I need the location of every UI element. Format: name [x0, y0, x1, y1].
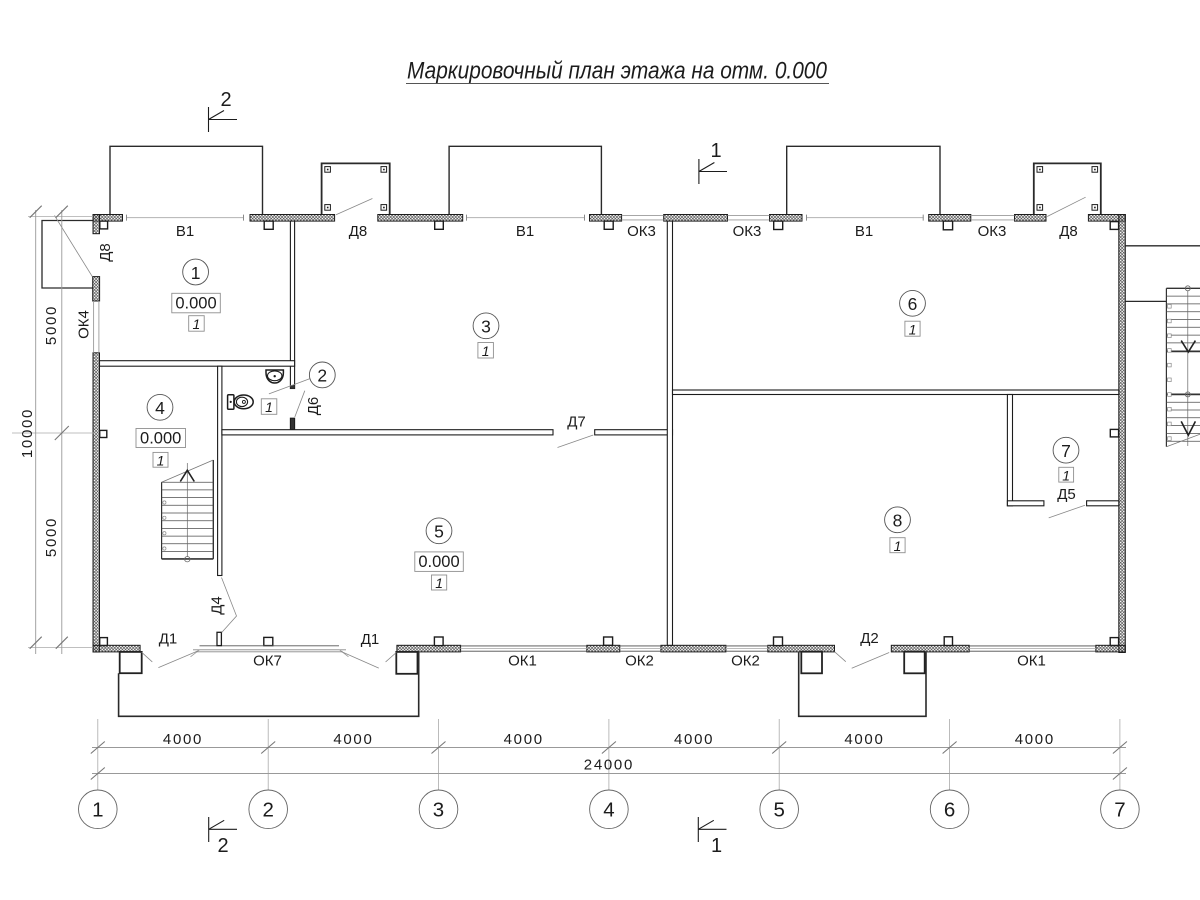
svg-text:1: 1 [482, 343, 490, 359]
svg-text:1: 1 [710, 140, 721, 162]
svg-text:1: 1 [1062, 467, 1070, 483]
svg-text:1: 1 [909, 321, 917, 337]
svg-text:Маркировочный план этажа на от: Маркировочный план этажа на отм. 0.000 [407, 58, 827, 85]
svg-text:1: 1 [191, 263, 201, 283]
svg-text:1: 1 [92, 799, 103, 822]
svg-text:7: 7 [1061, 441, 1071, 461]
svg-text:2: 2 [262, 799, 273, 822]
svg-text:1: 1 [193, 316, 201, 332]
svg-text:1: 1 [894, 538, 902, 554]
svg-text:Д7: Д7 [567, 414, 586, 431]
svg-text:6: 6 [944, 799, 955, 822]
svg-text:5: 5 [434, 522, 444, 542]
svg-text:Д1: Д1 [159, 631, 178, 648]
svg-text:ОК3: ОК3 [733, 223, 762, 240]
svg-text:4000: 4000 [1015, 731, 1055, 748]
svg-text:Д2: Д2 [860, 630, 879, 647]
svg-text:0.000: 0.000 [418, 553, 459, 571]
svg-text:4000: 4000 [333, 731, 373, 748]
svg-text:1: 1 [265, 399, 273, 415]
svg-text:4000: 4000 [844, 731, 884, 748]
svg-text:2: 2 [317, 366, 327, 386]
svg-text:Д4: Д4 [209, 596, 226, 615]
svg-text:0.000: 0.000 [175, 295, 216, 313]
svg-text:Д6: Д6 [305, 397, 322, 416]
svg-text:Д8: Д8 [349, 223, 368, 240]
svg-text:5: 5 [773, 799, 784, 822]
svg-text:24000: 24000 [584, 757, 634, 774]
svg-text:3: 3 [433, 799, 444, 822]
svg-text:В1: В1 [176, 223, 194, 240]
svg-text:В1: В1 [516, 223, 534, 240]
svg-text:8: 8 [893, 511, 903, 531]
svg-text:10000: 10000 [19, 408, 36, 458]
svg-text:4000: 4000 [504, 731, 544, 748]
svg-text:5000: 5000 [43, 517, 60, 557]
svg-text:ОК1: ОК1 [508, 653, 537, 670]
svg-text:ОК1: ОК1 [1017, 652, 1046, 669]
svg-text:Д5: Д5 [1057, 486, 1076, 503]
svg-text:Д8: Д8 [1059, 223, 1078, 240]
svg-text:4000: 4000 [674, 731, 714, 748]
svg-text:4000: 4000 [163, 731, 203, 748]
svg-text:6: 6 [908, 294, 918, 314]
svg-text:2: 2 [220, 89, 231, 111]
svg-text:0.000: 0.000 [140, 430, 181, 448]
svg-text:Д1: Д1 [361, 631, 380, 648]
svg-text:1: 1 [157, 452, 165, 468]
svg-text:ОК3: ОК3 [627, 223, 656, 240]
svg-text:4: 4 [155, 398, 165, 418]
svg-text:ОК4: ОК4 [76, 310, 93, 339]
svg-text:5000: 5000 [43, 305, 60, 345]
svg-text:7: 7 [1114, 799, 1125, 822]
svg-text:ОК3: ОК3 [978, 223, 1007, 240]
svg-text:4: 4 [603, 799, 614, 822]
svg-text:ОК7: ОК7 [253, 652, 282, 669]
svg-text:ОК2: ОК2 [731, 653, 760, 670]
svg-text:3: 3 [481, 317, 491, 337]
svg-text:Д8: Д8 [97, 243, 114, 262]
svg-text:1: 1 [711, 835, 722, 857]
svg-text:В1: В1 [855, 223, 873, 240]
svg-text:1: 1 [435, 575, 443, 591]
svg-text:ОК2: ОК2 [625, 653, 654, 670]
svg-text:2: 2 [217, 835, 228, 857]
